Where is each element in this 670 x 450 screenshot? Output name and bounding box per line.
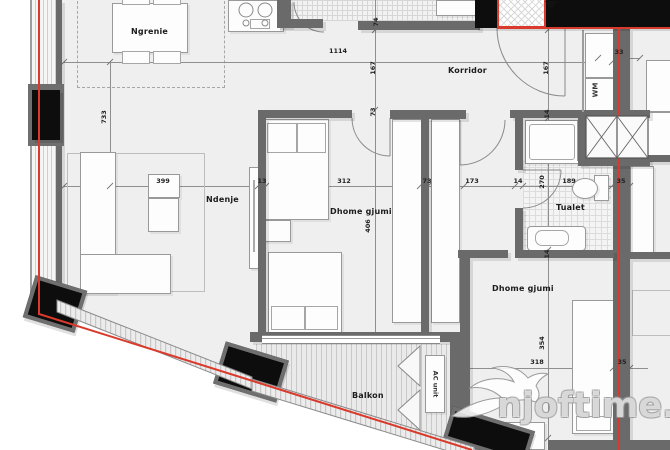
column-block — [32, 90, 60, 140]
dim-label: 354 — [538, 328, 546, 358]
wall-segment — [458, 250, 508, 258]
shower-tray — [529, 124, 575, 160]
room-label-living: Ndenje — [206, 195, 239, 204]
dim-label: 35 — [606, 177, 636, 185]
room-label-toilet: Tualet — [556, 203, 585, 212]
dim-label: 189 — [554, 177, 584, 185]
dim-label: 14 — [543, 99, 551, 129]
sofa — [632, 290, 670, 336]
dim-label: 33 — [604, 48, 634, 56]
pillow — [297, 123, 326, 153]
wardrobe — [431, 119, 460, 323]
wall-segment — [582, 30, 584, 112]
cabinet — [632, 112, 670, 160]
wall-segment — [548, 440, 670, 450]
nightstand — [263, 220, 291, 242]
wall-segment — [421, 118, 429, 332]
ac-unit-box: AC unit — [425, 355, 445, 413]
window-band — [32, 0, 56, 302]
pillow — [267, 123, 297, 153]
dim-label: 318 — [522, 358, 552, 366]
pillow — [305, 306, 338, 330]
dim-label: 167 — [369, 53, 377, 83]
red-section-line — [497, 27, 670, 29]
cabinet — [646, 60, 670, 112]
chair — [153, 0, 181, 5]
wall-segment — [258, 118, 266, 340]
dim-line — [375, 0, 376, 332]
wall-segment — [630, 252, 670, 259]
room-label-balcony: Balkon — [352, 391, 384, 400]
dim-label: 399 — [148, 177, 178, 185]
chair — [122, 51, 150, 64]
washing-machine-label: WM — [591, 83, 599, 98]
dim-label: 733 — [100, 102, 108, 132]
dim-label: 14 — [543, 239, 551, 269]
room-label-corridor: Korridor — [448, 66, 487, 75]
red-section-line — [38, 0, 40, 315]
wall-segment — [277, 19, 323, 28]
dim-label: 270 — [538, 167, 546, 197]
dim-label: 1114 — [323, 47, 353, 55]
dim-label: 173 — [457, 177, 487, 185]
wall-segment — [515, 208, 523, 252]
sofa — [80, 254, 171, 294]
window-band — [262, 335, 440, 344]
chair — [122, 0, 150, 5]
stove-panel — [250, 19, 270, 29]
wall-segment — [515, 250, 614, 258]
wall-segment — [515, 118, 523, 170]
dim-label: 73 — [412, 177, 442, 185]
room-label-bedroom2: Dhome gjumi — [492, 284, 554, 293]
pillow — [271, 306, 305, 330]
room-label-dining: Ngrenie — [131, 27, 168, 36]
sink-basin — [535, 230, 569, 246]
hatched-area — [497, 0, 546, 28]
floor-plan: AC unit — [0, 0, 670, 450]
wall-segment — [56, 0, 62, 302]
kitchen-sink-counter — [436, 0, 478, 16]
wall-segment — [578, 158, 650, 166]
wall-segment — [258, 110, 352, 118]
dim-label: 14 — [503, 177, 533, 185]
dim-label: 73 — [369, 97, 377, 127]
tv-screen — [253, 180, 255, 252]
washing-machine-box — [585, 78, 615, 113]
dim-label: 74 — [372, 7, 380, 37]
dim-label: 13 — [247, 177, 277, 185]
room-label-bedroom1: Dhome gjumi — [330, 207, 392, 216]
watermark-text: njoftime.al — [497, 386, 670, 426]
wardrobe — [392, 119, 422, 323]
coffee-table — [148, 198, 179, 232]
chair — [153, 51, 181, 64]
dim-label: 167 — [542, 53, 550, 83]
ac-unit-label: AC unit — [431, 371, 439, 398]
wall-segment — [510, 110, 650, 118]
dim-label: 312 — [329, 177, 359, 185]
dim-label: 35 — [607, 358, 637, 366]
